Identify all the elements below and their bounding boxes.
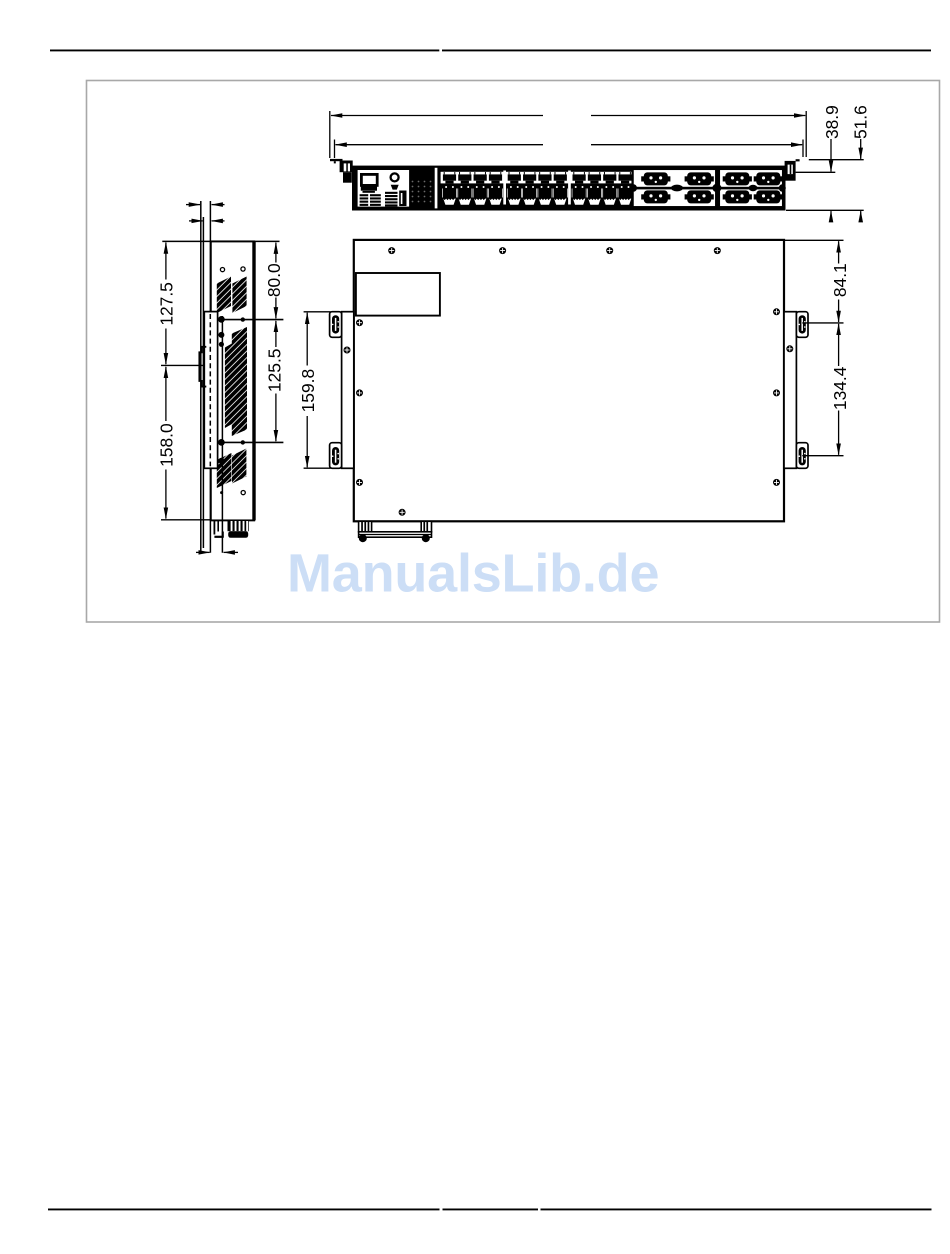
svg-text:159.8: 159.8 (298, 369, 318, 413)
svg-text:38.9: 38.9 (822, 105, 842, 139)
svg-text:84.1: 84.1 (830, 263, 850, 297)
svg-text:51.6: 51.6 (851, 105, 871, 139)
svg-text:134.4: 134.4 (830, 366, 850, 410)
svg-text:80.0: 80.0 (264, 263, 284, 297)
svg-text:158.0: 158.0 (156, 423, 176, 467)
svg-text:ManualsLib.de: ManualsLib.de (287, 544, 660, 604)
svg-text:125.5: 125.5 (264, 349, 284, 393)
svg-text:127.5: 127.5 (156, 282, 176, 326)
